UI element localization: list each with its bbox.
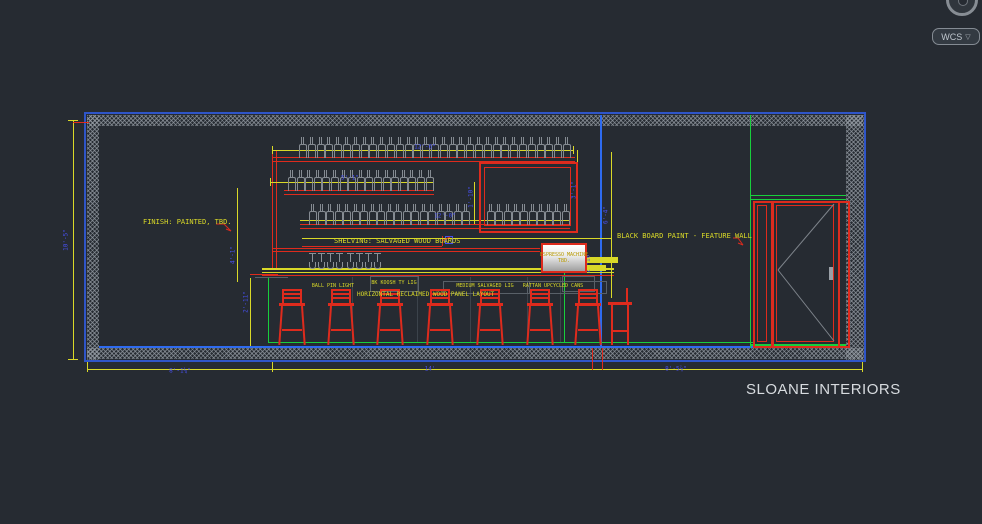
dimension-text: 14' (425, 366, 436, 373)
bottle-glyph (343, 144, 351, 158)
cad-line (611, 152, 612, 298)
bottle-glyph (545, 211, 553, 225)
cad-line (284, 194, 434, 195)
bottle-glyph (426, 177, 434, 191)
cad-line (73, 120, 74, 360)
bottle-glyph (484, 144, 492, 158)
bottle-glyph (396, 144, 404, 158)
cad-line (573, 146, 574, 154)
cad-line (276, 151, 277, 270)
cad-line (272, 146, 273, 154)
cad-line (592, 348, 593, 370)
cad-line (272, 248, 540, 249)
wine-glass-glyph (336, 253, 343, 270)
bottle-glyph (554, 144, 562, 158)
bottle-glyph (386, 211, 394, 225)
bottle-glyph (394, 211, 402, 225)
bottle-glyph (420, 211, 428, 225)
wine-glass-glyph (318, 253, 325, 270)
bottle-glyph (369, 211, 377, 225)
bottle-glyph (563, 144, 571, 158)
bottle-glyph (305, 177, 313, 191)
bottle-glyph (475, 144, 483, 158)
bottle-glyph (325, 144, 333, 158)
bottle-glyph (318, 211, 326, 225)
cad-line (272, 151, 273, 270)
dimension-text: 4'-1" (230, 246, 237, 264)
wcs-label: WCS (941, 32, 962, 42)
keynote-label: BALL PIN LIGHT (312, 283, 354, 289)
chevron-down-icon: ▽ (965, 33, 970, 41)
bottle-glyph (309, 211, 317, 225)
cad-line (68, 359, 78, 360)
dimension-text: 2'-11" (243, 291, 250, 313)
dimension-text: 3'-1" (571, 181, 578, 199)
bar-stool (328, 289, 354, 345)
cad-line (68, 120, 78, 121)
bar-stool (279, 289, 305, 345)
bottle-glyph (299, 144, 307, 158)
bottle-glyph (417, 177, 425, 191)
bottle-glyph (391, 177, 399, 191)
bottle-glyph (297, 177, 305, 191)
bottle-glyph (400, 177, 408, 191)
bottle-glyph (449, 144, 457, 158)
cad-viewport[interactable]: 12'-6"5'-1"12'-0"1'-10"3'-1"6'-4"2'-10"1… (0, 0, 982, 524)
bottle-glyph (553, 211, 561, 225)
bottle-glyph (501, 144, 509, 158)
bottle-glyph (495, 211, 503, 225)
bottle-glyph (537, 211, 545, 225)
dimension-text: 6'-4" (603, 206, 610, 224)
bottle-glyph (457, 144, 465, 158)
cad-line (84, 112, 866, 114)
cad-line (750, 199, 846, 200)
dimension-text: 12'-0" (434, 213, 456, 220)
wine-glass-glyph (374, 253, 381, 270)
dimension-text: 8'-5⅞" (665, 366, 687, 373)
machine-box: ESPRESSO MACHINE TBD. (541, 243, 587, 273)
bottle-glyph (487, 211, 495, 225)
cad-line (272, 251, 540, 252)
bottle-glyph (405, 144, 413, 158)
company-title: SLOANE INTERIORS (746, 381, 901, 398)
bottle-glyph (322, 177, 330, 191)
cad-box (776, 205, 834, 342)
bottle-glyph (440, 144, 448, 158)
cad-line (862, 362, 863, 372)
dimension-text: 8'-1¼" (169, 368, 191, 375)
bar-chair (608, 288, 634, 344)
bottle-glyph (334, 144, 342, 158)
bottle-glyph (288, 177, 296, 191)
bottle-glyph (462, 211, 470, 225)
dimension-text: 12'-6" (414, 144, 436, 151)
cad-line (864, 112, 866, 362)
wall-hatch (87, 115, 863, 126)
cad-box (838, 201, 850, 348)
cad-line (270, 178, 271, 186)
bottle-glyph (374, 177, 382, 191)
cad-diagonal-line (226, 229, 231, 231)
cad-line (237, 188, 238, 282)
cad-line (84, 360, 866, 362)
bottle-glyph (493, 144, 501, 158)
cad-line (268, 277, 269, 343)
wcs-dropdown[interactable]: WCS ▽ (932, 28, 980, 45)
bottle-glyph (352, 144, 360, 158)
cad-line (99, 346, 847, 348)
cad-box (757, 205, 767, 342)
bottle-glyph (317, 144, 325, 158)
note-finish: FINISH: PAINTED, TBD. (143, 218, 232, 226)
wine-glass-glyph (327, 253, 334, 270)
bottle-glyph (378, 144, 386, 158)
cad-line (250, 278, 251, 346)
bottle-glyph (352, 211, 360, 225)
bottle-glyph (512, 211, 520, 225)
bottle-glyph (314, 177, 322, 191)
bottle-glyph (545, 144, 553, 158)
note-panel-layout: HORIZONTAL RECLAIMED WOOD PANEL LAYOUT (357, 291, 494, 299)
navigation-wheel-icon[interactable] (946, 0, 978, 16)
keynote-label: MEDIUM SALVAGED LIG (456, 283, 513, 289)
wine-glass-glyph (356, 253, 363, 270)
bottle-glyph (308, 144, 316, 158)
bottle-glyph (387, 144, 395, 158)
cad-line (73, 122, 89, 123)
bottle-glyph (369, 144, 377, 158)
dimension-text: 10'-5" (63, 229, 70, 251)
cad-line (87, 362, 88, 372)
cad-line (87, 369, 863, 370)
dimension-text: 5'-1" (341, 175, 359, 182)
bottle-glyph (466, 144, 474, 158)
cad-line (84, 112, 86, 362)
bottle-glyph (562, 211, 570, 225)
bar-stool (527, 289, 553, 345)
cad-diagonal-line (738, 243, 743, 245)
wall-hatch (87, 115, 99, 360)
bottle-glyph (326, 211, 334, 225)
bottle-glyph (528, 144, 536, 158)
bottle-glyph (537, 144, 545, 158)
cad-line (255, 277, 288, 278)
note-blackboard: BLACK BOARD PAINT - FEATURE WALL (617, 232, 752, 240)
cad-line (272, 362, 273, 372)
bottle-glyph (510, 144, 518, 158)
bottle-glyph (360, 211, 368, 225)
cad-line (302, 246, 442, 247)
keynote-label: RATTAN UPCYCLED CANS (523, 283, 583, 289)
bar-stool (575, 289, 601, 345)
wall-hatch (87, 348, 863, 359)
bottle-glyph (343, 211, 351, 225)
keynote-label: BK KOOSH TY LIG (371, 280, 416, 286)
bottle-glyph (519, 144, 527, 158)
bottle-glyph (504, 211, 512, 225)
wine-glass-glyph (365, 253, 372, 270)
cad-line (250, 274, 278, 275)
bottle-glyph (335, 211, 343, 225)
bottle-glyph (529, 211, 537, 225)
cad-line (602, 348, 603, 370)
machine-label-line2: TBD. (558, 258, 570, 264)
bottle-glyph (408, 177, 416, 191)
wine-glass-glyph (309, 253, 316, 270)
bottle-glyph (383, 177, 391, 191)
bottle-glyph (377, 211, 385, 225)
bottle-glyph (411, 211, 419, 225)
wine-glass-glyph (347, 253, 354, 270)
bottle-glyph (331, 177, 339, 191)
note-shelving: SHELVING: SALVAGED WOOD BOARDS (334, 237, 460, 245)
bottle-glyph (520, 211, 528, 225)
dimension-text: 1'-10" (468, 186, 475, 208)
bottle-glyph (361, 144, 369, 158)
cad-line (750, 195, 846, 196)
bottle-glyph (403, 211, 411, 225)
bottle-glyph (365, 177, 373, 191)
